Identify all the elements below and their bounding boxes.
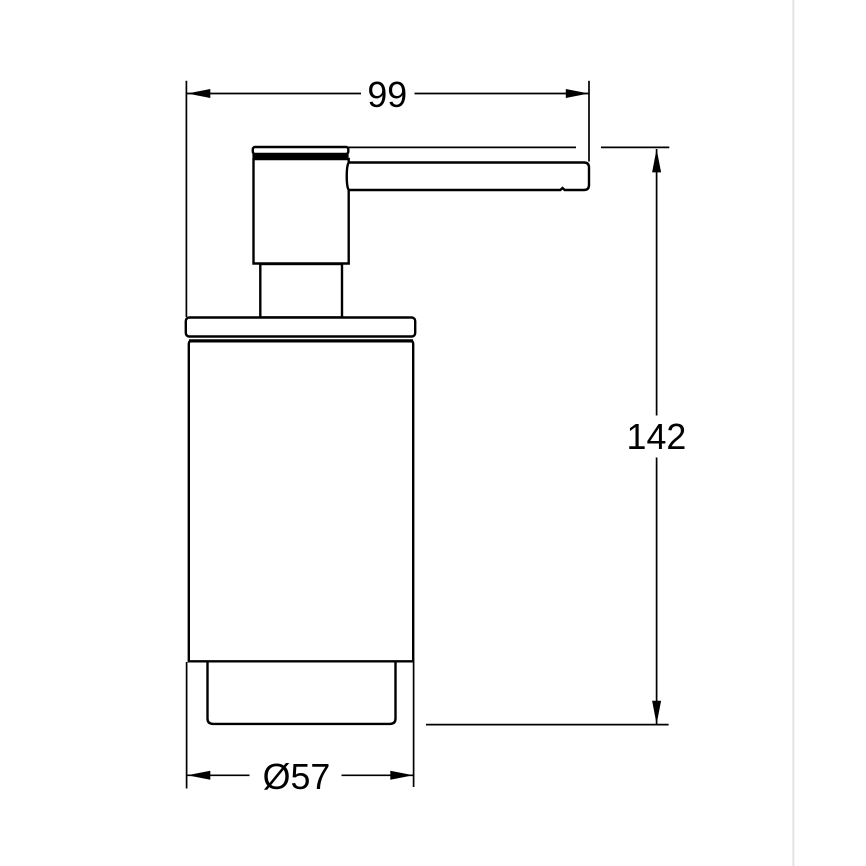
- svg-text:99: 99: [367, 75, 407, 115]
- svg-text:142: 142: [627, 417, 687, 457]
- svg-text:Ø57: Ø57: [263, 757, 331, 797]
